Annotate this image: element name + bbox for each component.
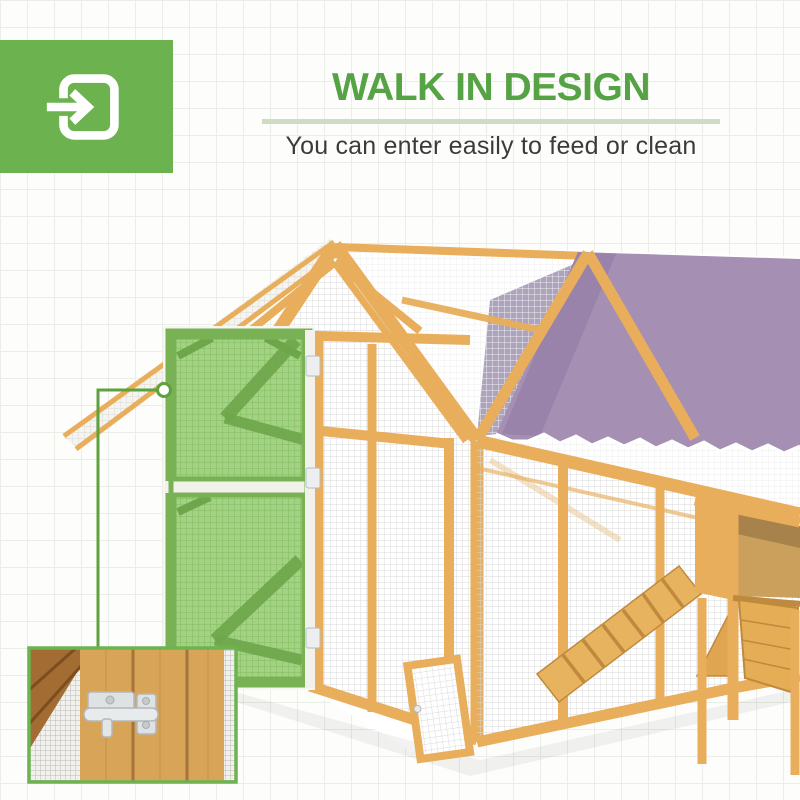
door-hinge: [306, 628, 320, 648]
latch-knob: [102, 719, 112, 737]
latch-bolt-bar: [84, 708, 158, 721]
latch-closeup-inset: [29, 648, 236, 782]
door-hinge: [306, 468, 320, 488]
small-door-latch: [414, 705, 422, 713]
open-mesh-door-highlight: [163, 326, 320, 690]
door-hinge: [306, 356, 320, 376]
marketing-slide: WALK IN DESIGN You can enter easily to f…: [0, 0, 800, 800]
box-drop-door: [739, 600, 798, 692]
small-access-door: [407, 659, 470, 759]
leader-circle: [158, 384, 171, 397]
coop-illustration: [0, 0, 800, 800]
door-mid-rail: [165, 481, 311, 493]
